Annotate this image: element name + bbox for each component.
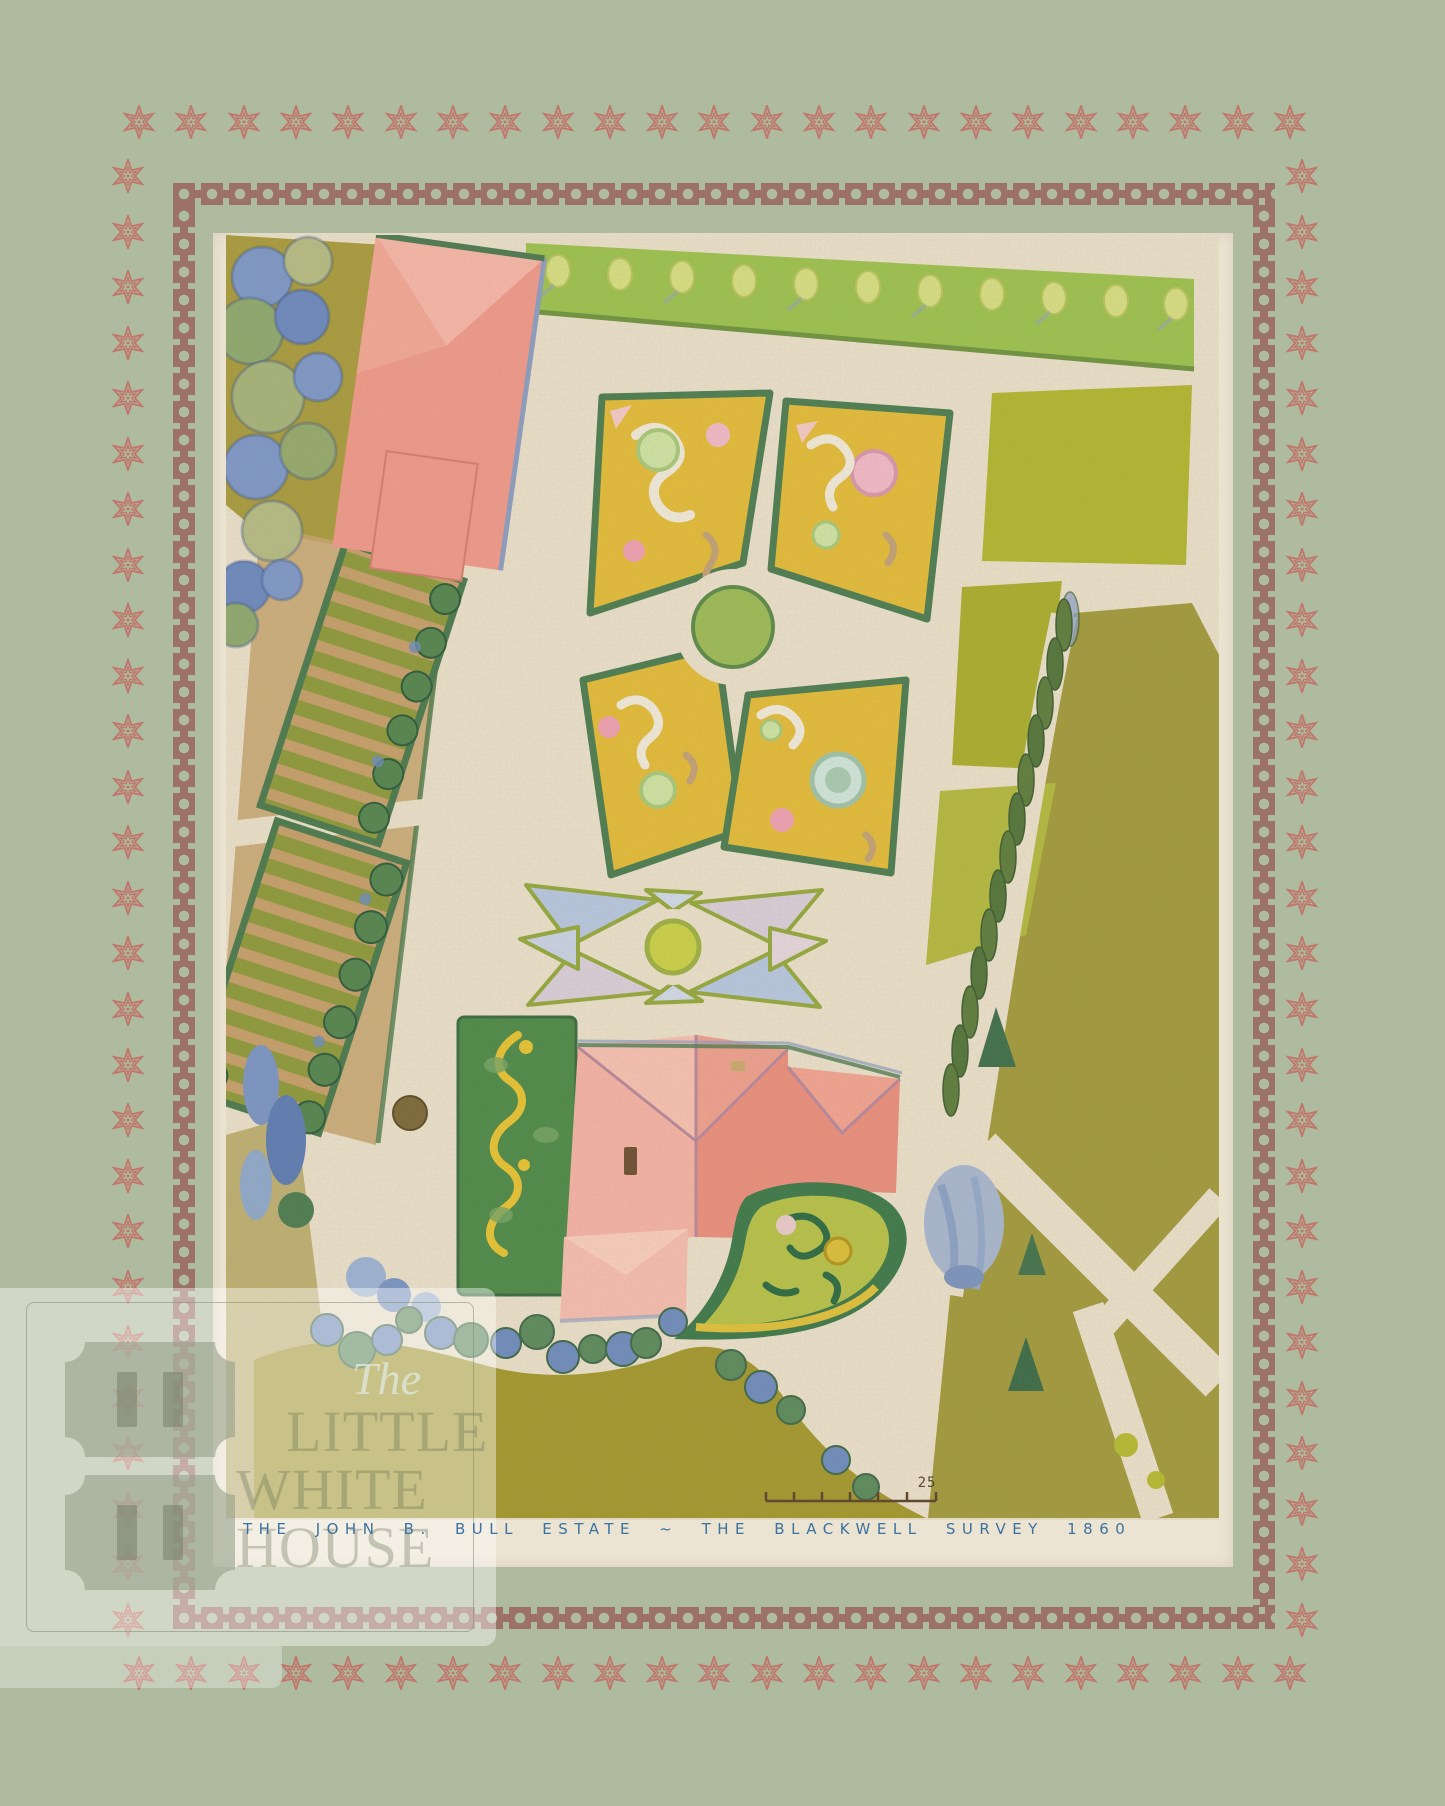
star-icon [750,1656,784,1690]
star-icon [907,105,941,139]
star-icon [959,1656,993,1690]
star-icon [1168,105,1202,139]
star-icon [645,1656,679,1690]
star-icon [1064,1656,1098,1690]
star-icon [1285,1325,1319,1359]
star-icon [122,1656,156,1690]
chain-border-left [173,205,195,1607]
star-icon [1168,1656,1202,1690]
star-icon [593,1656,627,1690]
chain-border-top [173,183,1275,205]
star-icon [645,105,679,139]
star-icon [111,1325,145,1359]
star-icon [111,1270,145,1304]
star-icon [1285,159,1319,193]
star-icon [802,105,836,139]
star-icon [541,105,575,139]
star-icon [1116,105,1150,139]
star-icon [331,1656,365,1690]
star-icon [1285,1270,1319,1304]
star-icon [1285,825,1319,859]
star-icon [111,548,145,582]
star-icon [111,326,145,360]
star-icon [279,105,313,139]
star-icon [384,105,418,139]
star-icon [111,1603,145,1637]
star-icon [1064,105,1098,139]
star-icon [1285,1436,1319,1470]
star-icon [907,1656,941,1690]
star-icon [1285,603,1319,637]
star-icon [111,992,145,1026]
star-icon [436,105,470,139]
star-icon [111,881,145,915]
star-icon [1285,1214,1319,1248]
star-icon [331,105,365,139]
star-icon [854,1656,888,1690]
star-icon [1221,105,1255,139]
star-icon [111,659,145,693]
star-icon [1285,1159,1319,1193]
star-icon [1285,548,1319,582]
star-icon [384,1656,418,1690]
star-icon [227,1656,261,1690]
star-icon [697,105,731,139]
star-border-bottom [122,1656,1307,1690]
star-icon [1285,936,1319,970]
star-icon [854,105,888,139]
caption: THE JOHN B. BULL ESTATE ~ THE BLACKWELL … [243,1520,1233,1538]
star-icon [802,1656,836,1690]
star-icon [697,1656,731,1690]
star-icon [1273,1656,1307,1690]
star-icon [111,1103,145,1137]
star-icon [1285,1048,1319,1082]
star-icon [1285,326,1319,360]
star-icon [1285,270,1319,304]
star-icon [436,1656,470,1690]
star-icon [1285,992,1319,1026]
star-icon [1285,1381,1319,1415]
star-icon [1285,1547,1319,1581]
framed-print: 25 THE JOHN B. BULL ESTATE ~ THE BLACKWE… [0,0,1445,1806]
star-border-right [1285,159,1319,1637]
chain-border-right [1253,205,1275,1607]
star-icon [111,437,145,471]
watermark-house-icon [64,1342,236,1590]
star-icon [111,603,145,637]
star-icon [1285,770,1319,804]
star-icon [1285,1603,1319,1637]
star-icon [1285,215,1319,249]
star-icon [1116,1656,1150,1690]
star-icon [1221,1656,1255,1690]
star-icon [111,159,145,193]
star-icon [1285,659,1319,693]
star-icon [488,1656,522,1690]
star-icon [111,936,145,970]
star-icon [1285,714,1319,748]
star-icon [111,1214,145,1248]
star-icon [122,105,156,139]
star-icon [1285,492,1319,526]
star-icon [111,1159,145,1193]
star-icon [111,1547,145,1581]
star-icon [111,1381,145,1415]
star-icon [279,1656,313,1690]
star-icon [111,1492,145,1526]
star-icon [111,381,145,415]
star-icon [1285,881,1319,915]
paper-grain [226,235,1219,1520]
star-icon [174,1656,208,1690]
star-icon [1285,1103,1319,1137]
star-icon [750,105,784,139]
star-icon [541,1656,575,1690]
star-icon [111,825,145,859]
star-icon [1285,381,1319,415]
star-icon [1285,437,1319,471]
star-icon [1011,105,1045,139]
star-icon [1011,1656,1045,1690]
star-icon [174,105,208,139]
star-icon [111,714,145,748]
star-icon [488,105,522,139]
star-icon [111,1436,145,1470]
star-icon [593,105,627,139]
chain-border-bottom [173,1607,1275,1629]
star-border-top [122,105,1307,139]
star-icon [111,1048,145,1082]
star-border-left [111,159,145,1637]
star-icon [111,492,145,526]
star-icon [1285,1492,1319,1526]
star-icon [959,105,993,139]
star-icon [111,770,145,804]
star-icon [1273,105,1307,139]
estate-plan-painting: 25 [226,235,1219,1520]
star-icon [111,215,145,249]
star-icon [227,105,261,139]
star-icon [111,270,145,304]
